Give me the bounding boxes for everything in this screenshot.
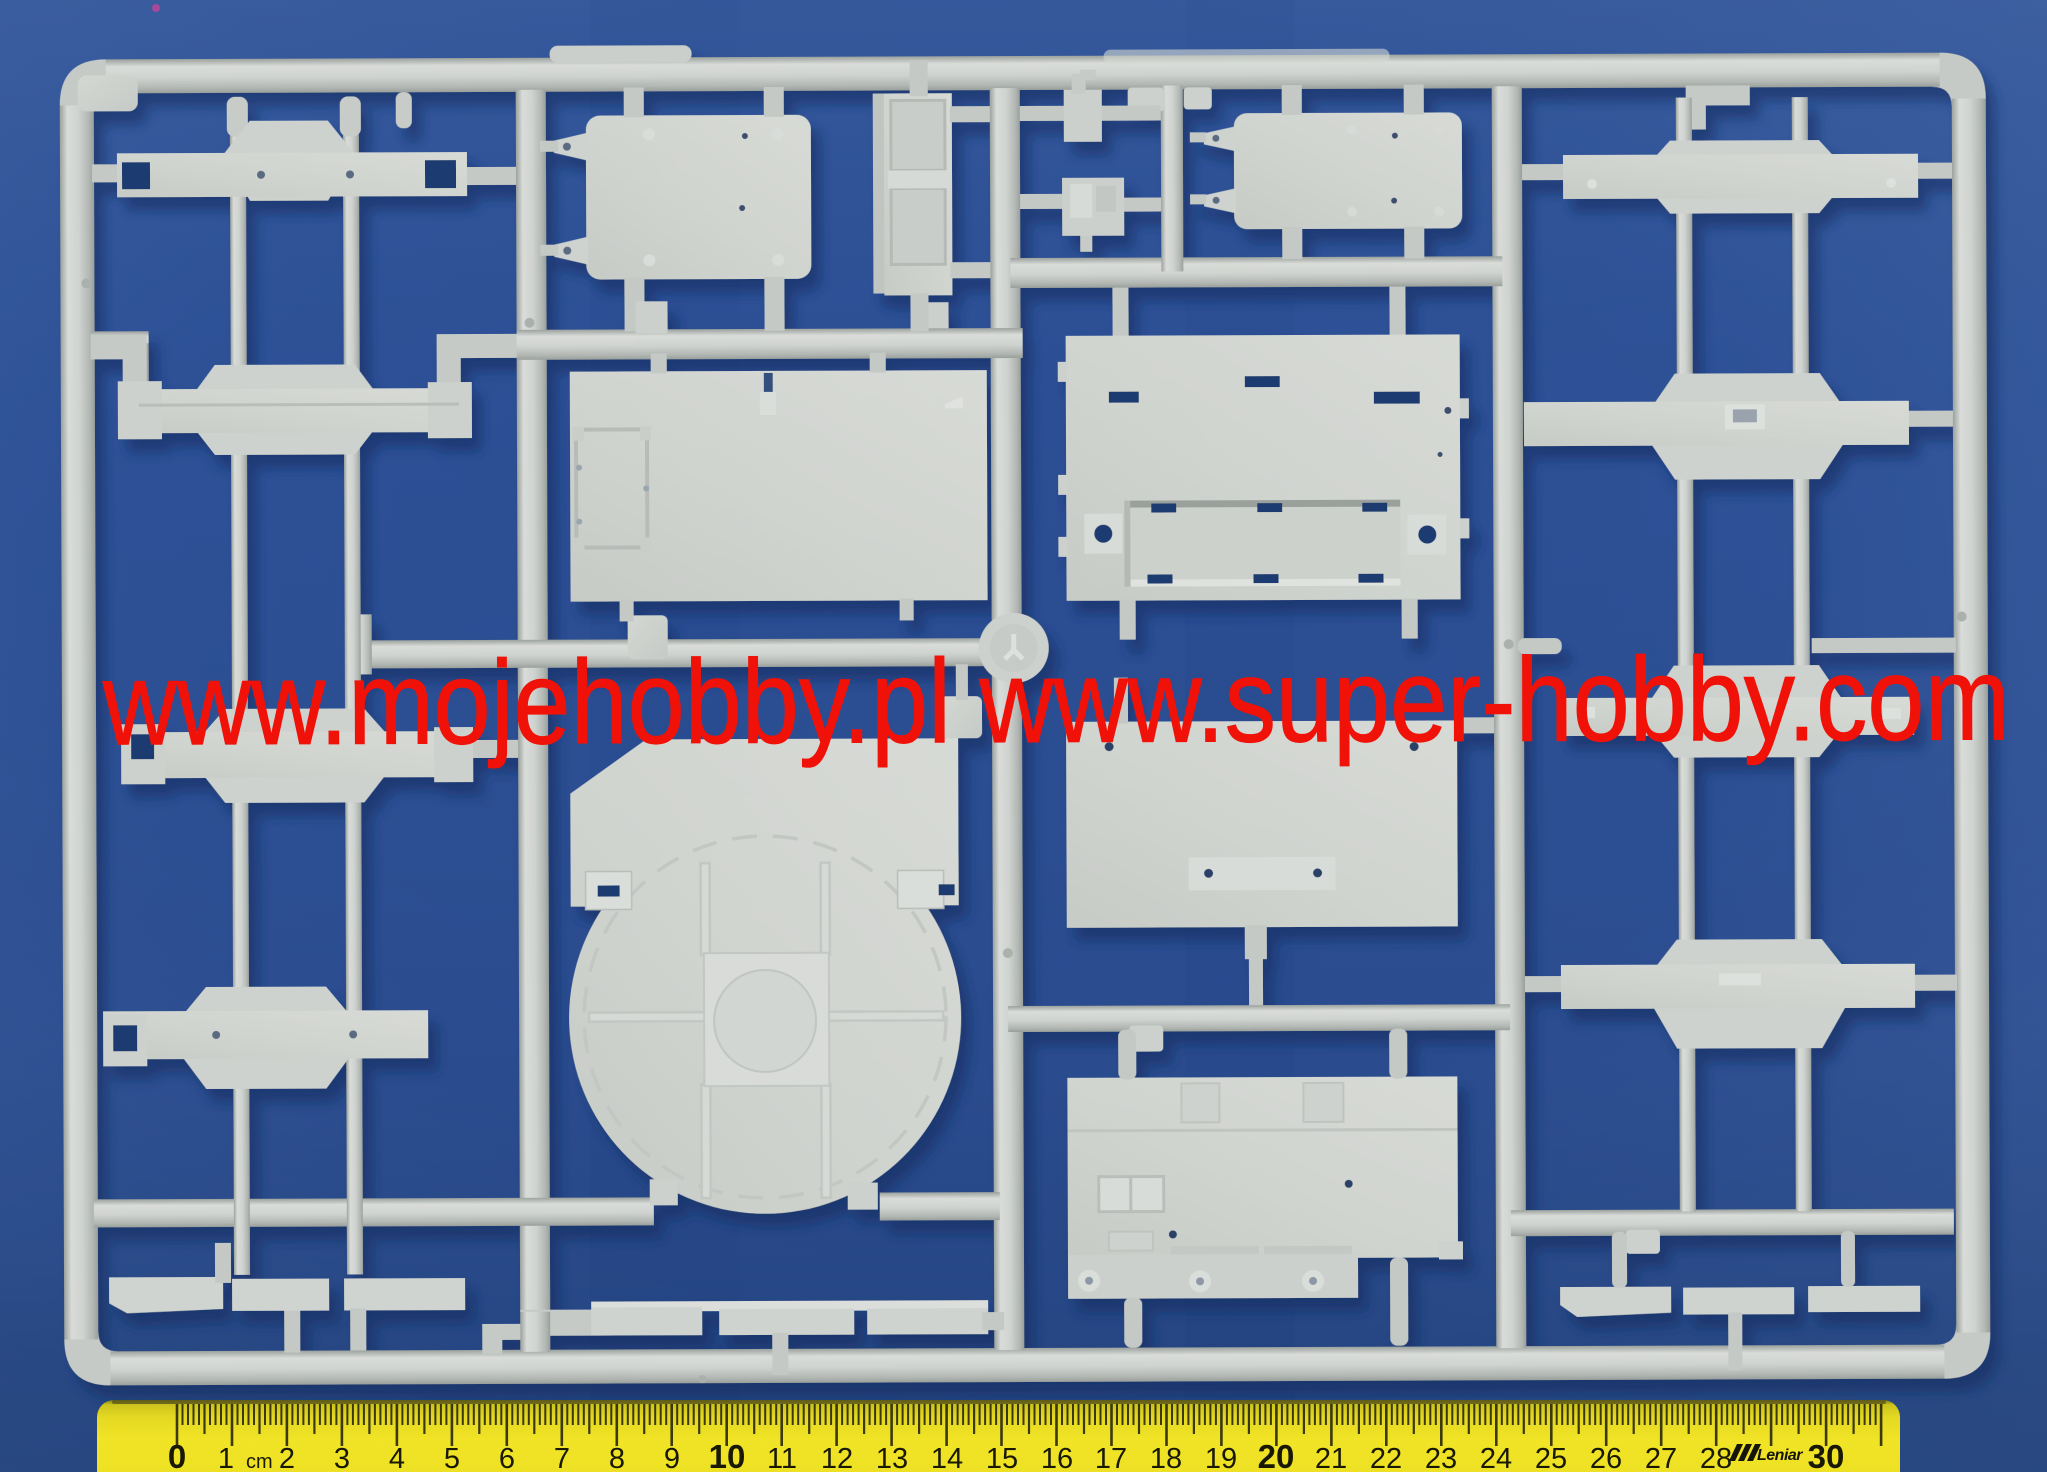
svg-text:23: 23 [1425, 1443, 1457, 1472]
svg-text:18: 18 [1150, 1443, 1182, 1472]
svg-text:15: 15 [986, 1443, 1018, 1472]
svg-text:28: 28 [1700, 1443, 1732, 1472]
svg-text:1: 1 [218, 1443, 234, 1472]
svg-text:www.mojehobby.pl www.super-hob: www.mojehobby.pl www.super-hobby.com [102, 632, 2010, 770]
svg-text:8: 8 [609, 1443, 625, 1472]
svg-text:Leniar: Leniar [1757, 1447, 1803, 1464]
svg-text:20: 20 [1258, 1438, 1295, 1472]
svg-text:13: 13 [876, 1443, 908, 1472]
svg-text:9: 9 [664, 1443, 680, 1472]
svg-text:25: 25 [1535, 1443, 1567, 1472]
svg-text:26: 26 [1590, 1443, 1622, 1472]
svg-text:19: 19 [1205, 1443, 1237, 1472]
svg-text:24: 24 [1480, 1443, 1512, 1472]
svg-text:10: 10 [709, 1438, 746, 1472]
svg-text:11: 11 [767, 1443, 797, 1472]
svg-text:7: 7 [554, 1443, 570, 1472]
svg-text:cm: cm [246, 1451, 273, 1472]
svg-text:14: 14 [931, 1443, 963, 1472]
svg-text:0: 0 [168, 1438, 186, 1472]
svg-text:22: 22 [1370, 1443, 1402, 1472]
svg-text:16: 16 [1041, 1443, 1073, 1472]
svg-text:30: 30 [1808, 1438, 1845, 1472]
svg-text:12: 12 [821, 1443, 853, 1472]
svg-text:2: 2 [279, 1443, 295, 1472]
svg-text:5: 5 [444, 1443, 460, 1472]
svg-text:4: 4 [389, 1443, 405, 1472]
svg-text:6: 6 [499, 1443, 515, 1472]
svg-text:3: 3 [334, 1443, 350, 1472]
svg-text:21: 21 [1315, 1443, 1347, 1472]
svg-text:17: 17 [1095, 1443, 1127, 1472]
svg-text:27: 27 [1645, 1443, 1677, 1472]
